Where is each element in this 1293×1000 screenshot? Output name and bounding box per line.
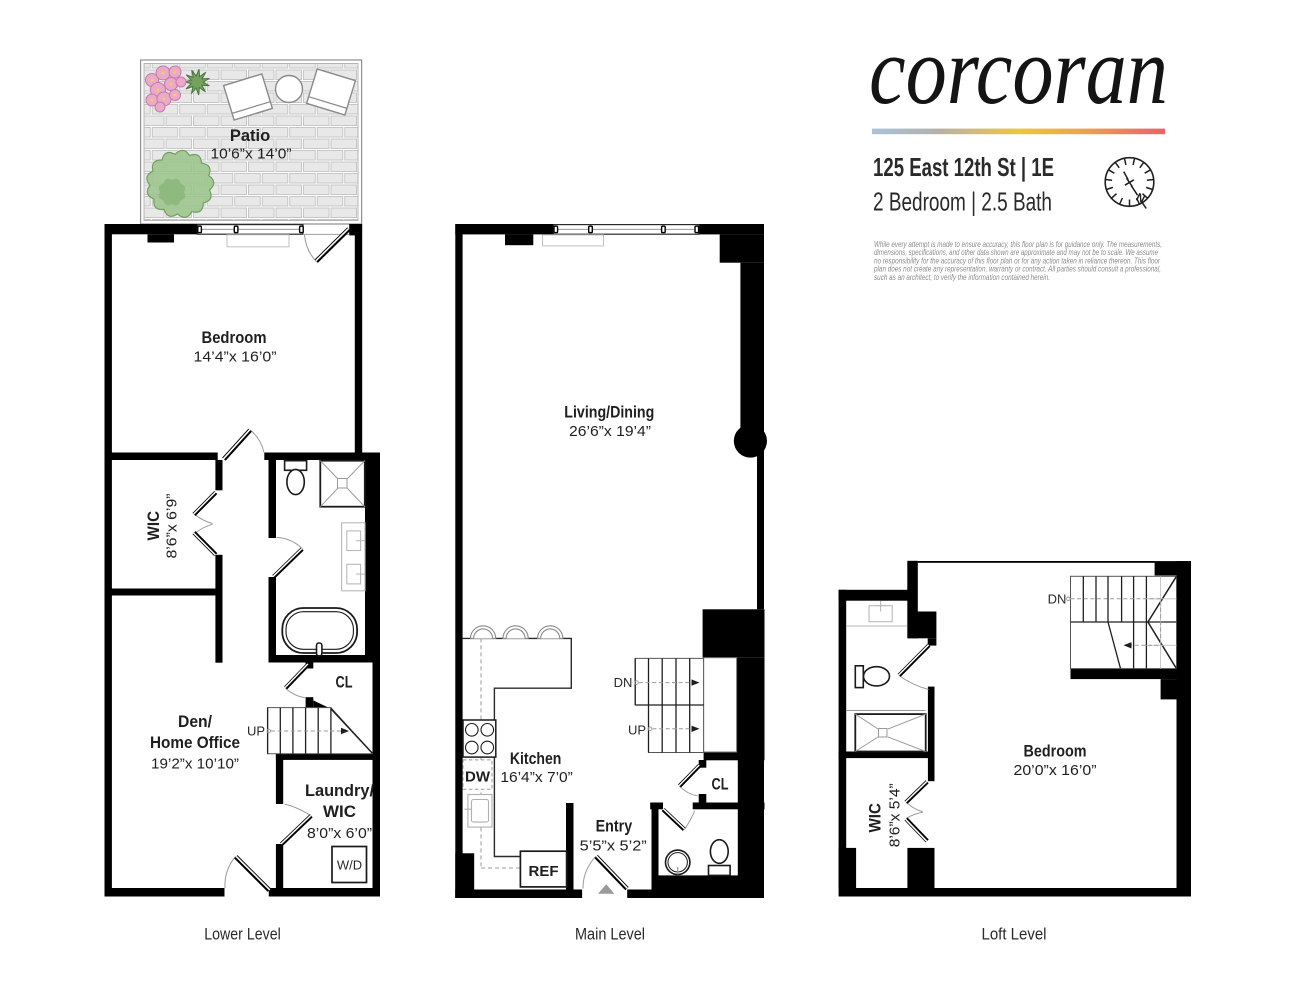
svg-text:5’5”x 5’2”: 5’5”x 5’2” <box>580 838 647 855</box>
svg-text:Main Level: Main Level <box>575 926 645 944</box>
svg-text:UP: UP <box>247 723 265 738</box>
svg-text:14’4”x 16’0”: 14’4”x 16’0” <box>194 349 277 366</box>
svg-text:Laundry/: Laundry/ <box>305 782 374 800</box>
svg-text:Den/: Den/ <box>178 713 212 731</box>
svg-text:Bedroom: Bedroom <box>1024 743 1087 761</box>
svg-text:125 East 12th St | 1E: 125 East 12th St | 1E <box>873 152 1054 182</box>
svg-text:such as an architect, to verif: such as an architect, to verify the info… <box>874 272 1050 282</box>
svg-text:Patio: Patio <box>230 127 270 145</box>
svg-text:20’0”x 16’0”: 20’0”x 16’0” <box>1014 762 1097 779</box>
svg-text:8’6”x 6’9”: 8’6”x 6’9” <box>164 494 181 559</box>
svg-text:2 Bedroom | 2.5 Bath: 2 Bedroom | 2.5 Bath <box>873 187 1052 217</box>
svg-text:DN: DN <box>614 675 633 690</box>
svg-text:19’2”x 10’10”: 19’2”x 10’10” <box>151 756 239 773</box>
svg-text:Living/Dining: Living/Dining <box>564 404 654 422</box>
svg-text:WIC: WIC <box>867 803 885 833</box>
svg-text:WIC: WIC <box>145 511 163 541</box>
svg-text:UP: UP <box>628 722 646 737</box>
svg-text:W/D: W/D <box>337 858 362 873</box>
svg-text:WIC: WIC <box>323 803 356 821</box>
svg-text:corcoran: corcoran <box>869 17 1168 124</box>
svg-text:10’6”x 14’0”: 10’6”x 14’0” <box>211 146 292 163</box>
svg-text:Lower Level: Lower Level <box>204 926 281 944</box>
svg-text:8’6”x 5’4”: 8’6”x 5’4” <box>887 783 904 847</box>
svg-text:CL: CL <box>712 776 729 794</box>
svg-text:16’4”x 7’0”: 16’4”x 7’0” <box>500 769 573 786</box>
svg-text:DW: DW <box>465 769 491 786</box>
svg-text:26’6”x 19’4”: 26’6”x 19’4” <box>569 423 651 440</box>
svg-text:CL: CL <box>336 674 353 692</box>
svg-text:Kitchen: Kitchen <box>510 750 562 768</box>
svg-text:DN: DN <box>1048 591 1067 606</box>
svg-text:8’0”x 6’0”: 8’0”x 6’0” <box>307 825 372 842</box>
svg-text:Home Office: Home Office <box>150 734 240 752</box>
svg-text:Bedroom: Bedroom <box>202 329 267 347</box>
svg-text:Entry: Entry <box>596 818 633 836</box>
svg-text:REF: REF <box>529 863 559 880</box>
svg-text:Loft Level: Loft Level <box>982 926 1047 944</box>
